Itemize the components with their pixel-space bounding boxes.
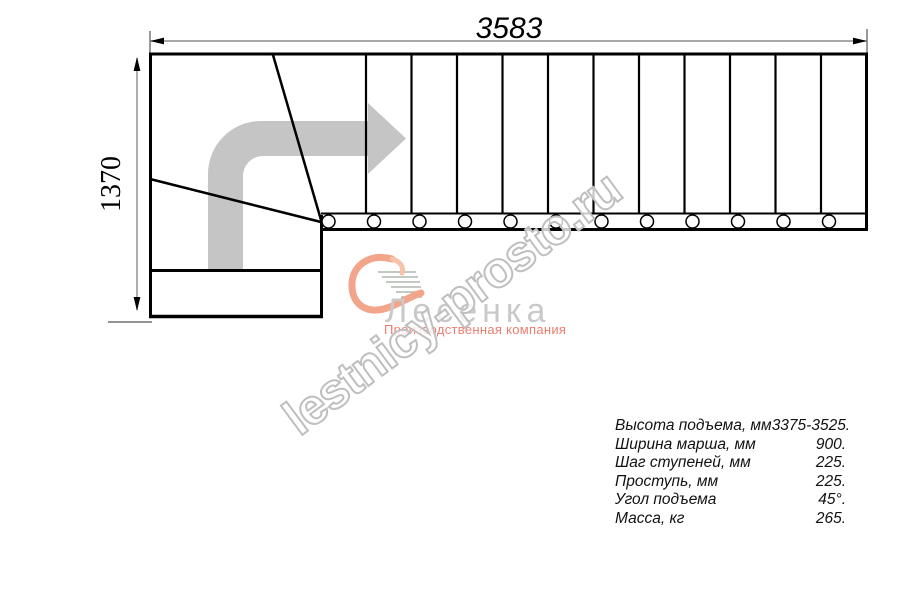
spec-row: Проступь, мм 225.	[615, 473, 846, 492]
spec-label: Масса, кг	[615, 510, 684, 529]
spec-value: 900.	[816, 436, 846, 455]
spec-row: Шаг ступеней, мм 225.	[615, 454, 846, 473]
spec-label: Высота подъема, мм	[615, 417, 772, 436]
spec-label: Проступь, мм	[615, 473, 718, 492]
spec-row: Угол подъема 45°.	[615, 491, 846, 510]
spec-table: Высота подъема, мм 3375-3525. Ширина мар…	[615, 417, 846, 529]
spec-value: 265.	[816, 510, 846, 529]
watermark-text: lestnicy-prosto.ru	[273, 160, 631, 446]
stair-drawing-page: 3583 1370	[0, 0, 900, 600]
spec-label: Шаг ступеней, мм	[615, 454, 751, 473]
spec-row: Масса, кг 265.	[615, 510, 846, 529]
spec-label: Угол подъема	[615, 491, 716, 510]
spec-row: Ширина марша, мм 900.	[615, 436, 846, 455]
spec-value: 45°.	[818, 491, 846, 510]
spec-value: 225.	[816, 454, 846, 473]
spec-label: Ширина марша, мм	[615, 436, 756, 455]
spec-row: Высота подъема, мм 3375-3525.	[615, 417, 846, 436]
spec-value: 225.	[816, 473, 846, 492]
spec-value: 3375-3525.	[772, 417, 850, 436]
